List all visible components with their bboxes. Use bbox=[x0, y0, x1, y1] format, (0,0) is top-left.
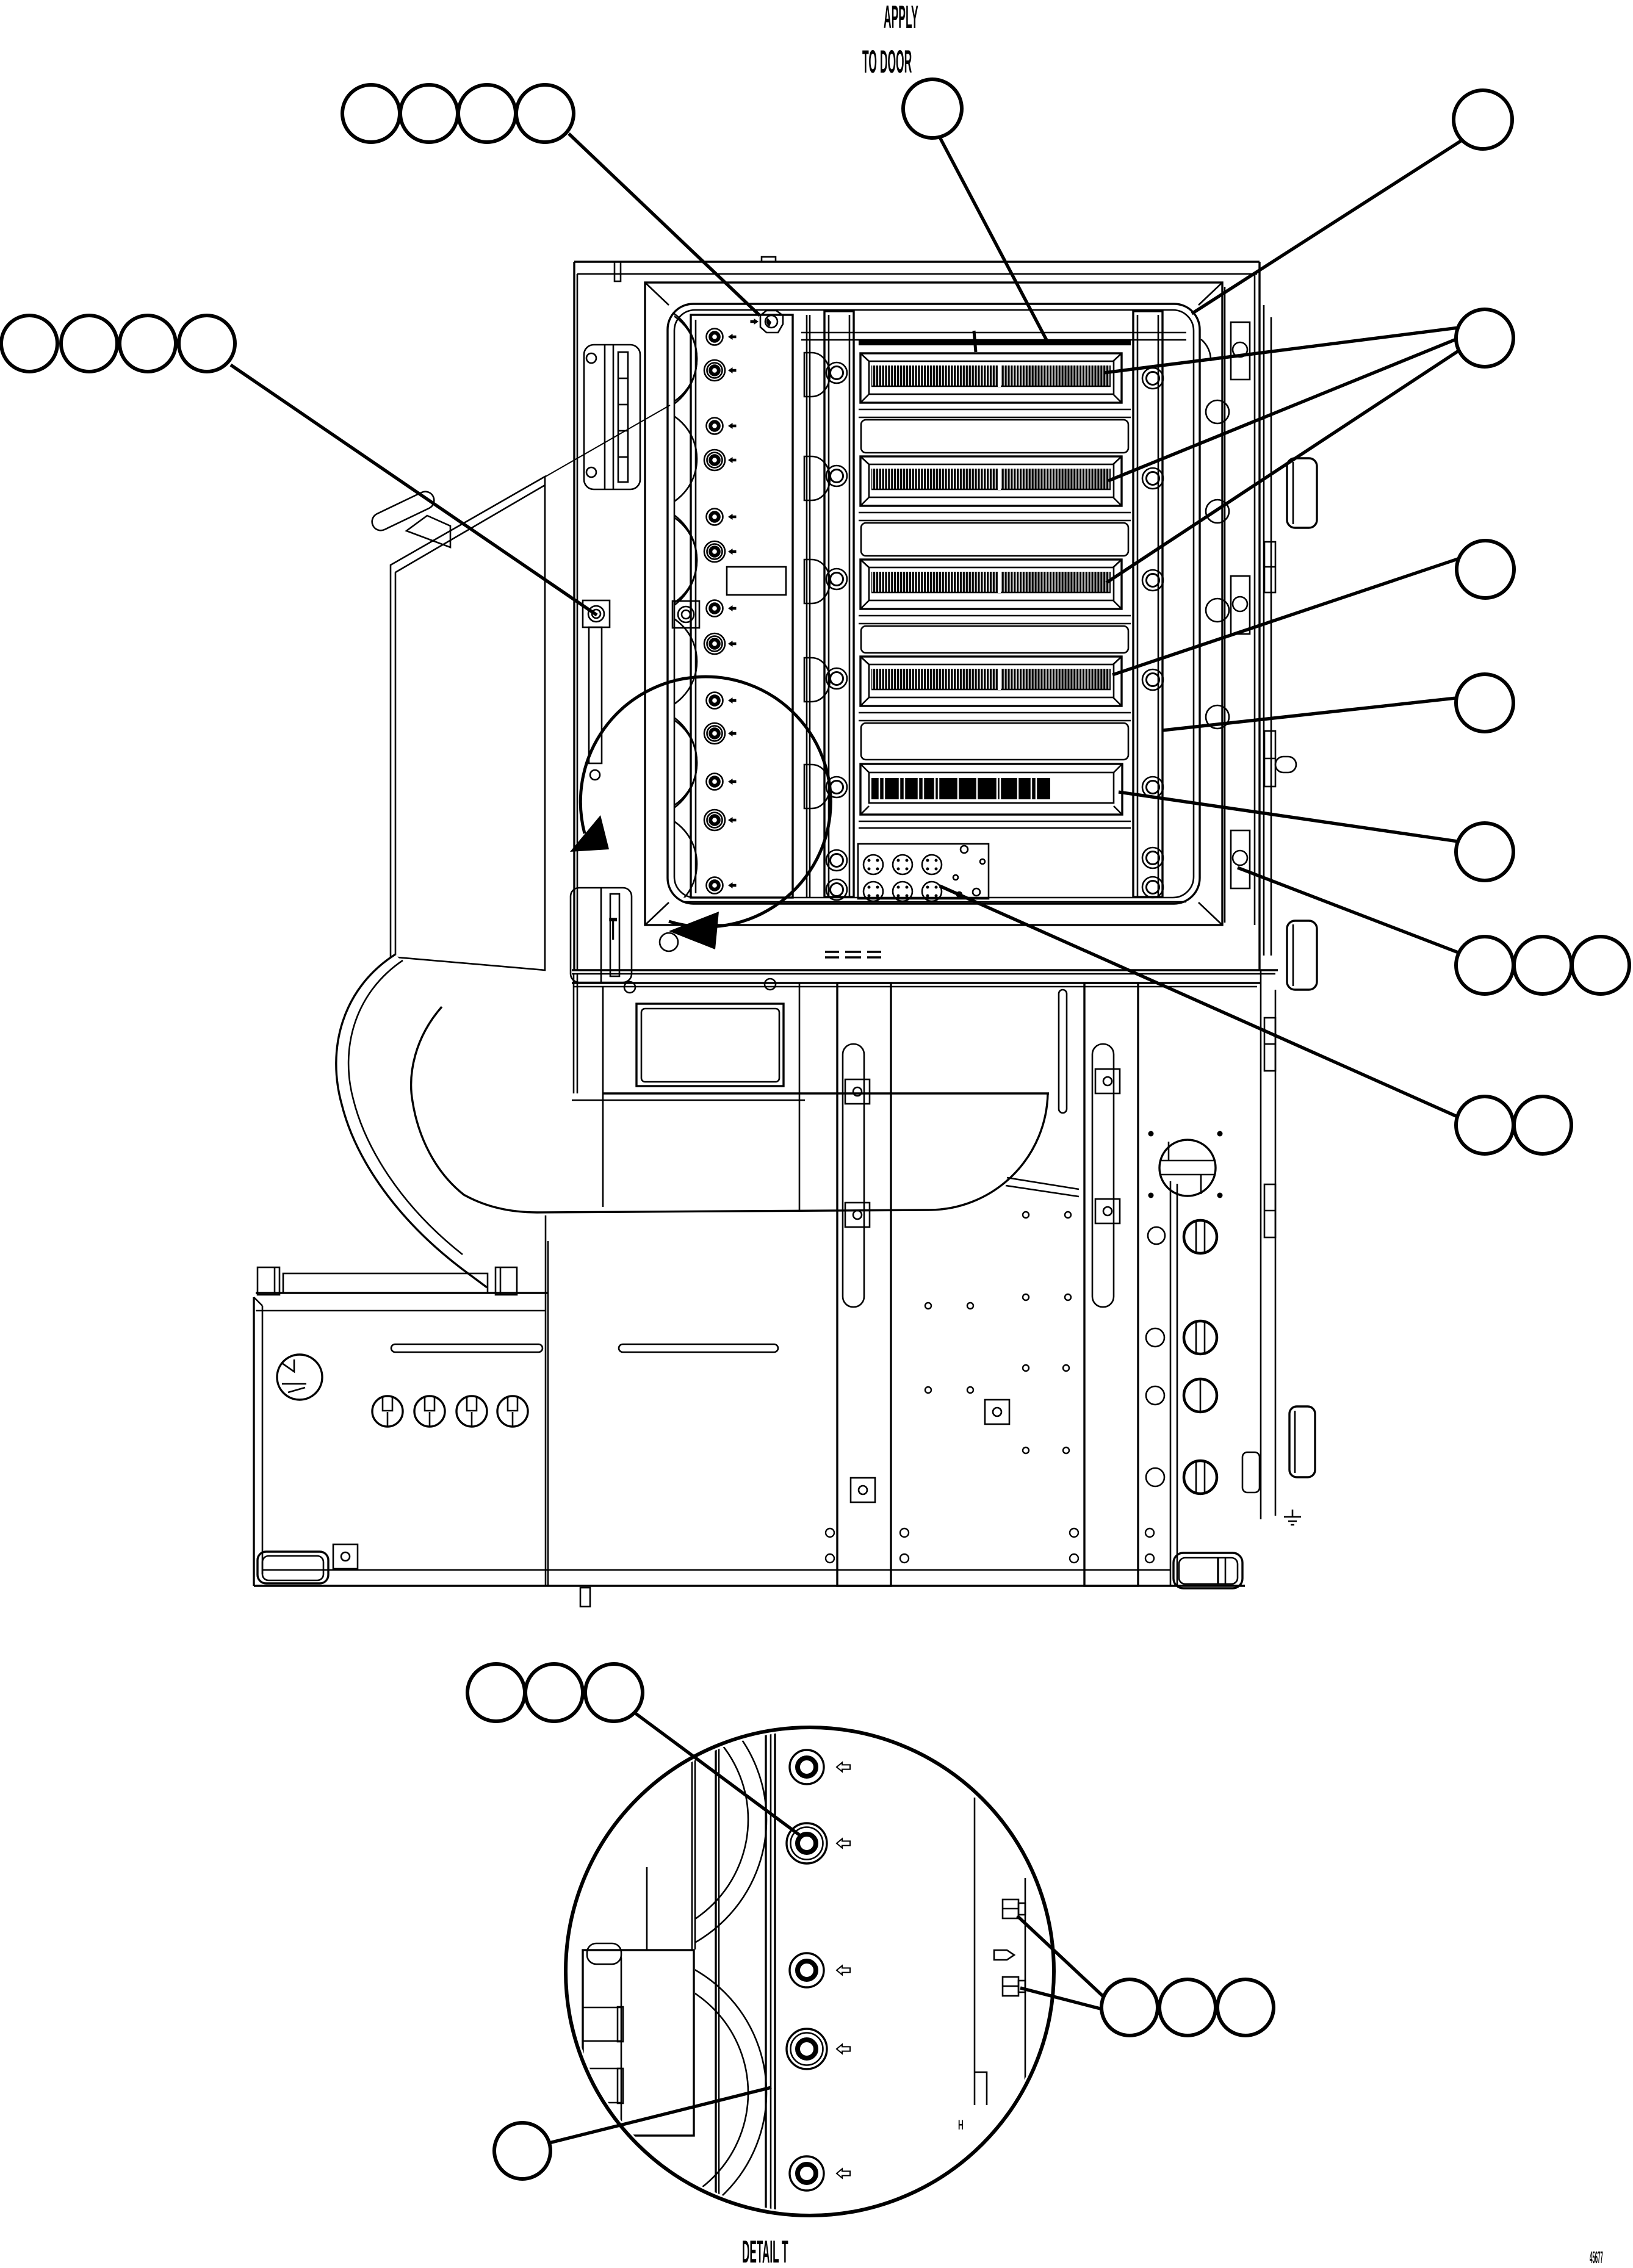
svg-text:45677: 45677 bbox=[1590, 2248, 1603, 2267]
svg-text:DETAIL T: DETAIL T bbox=[742, 2234, 788, 2268]
svg-text:TO DOOR: TO DOOR bbox=[862, 44, 912, 80]
svg-text:H: H bbox=[958, 2117, 964, 2133]
svg-text:T: T bbox=[609, 912, 617, 946]
svg-text:APPLY: APPLY bbox=[884, 0, 918, 35]
